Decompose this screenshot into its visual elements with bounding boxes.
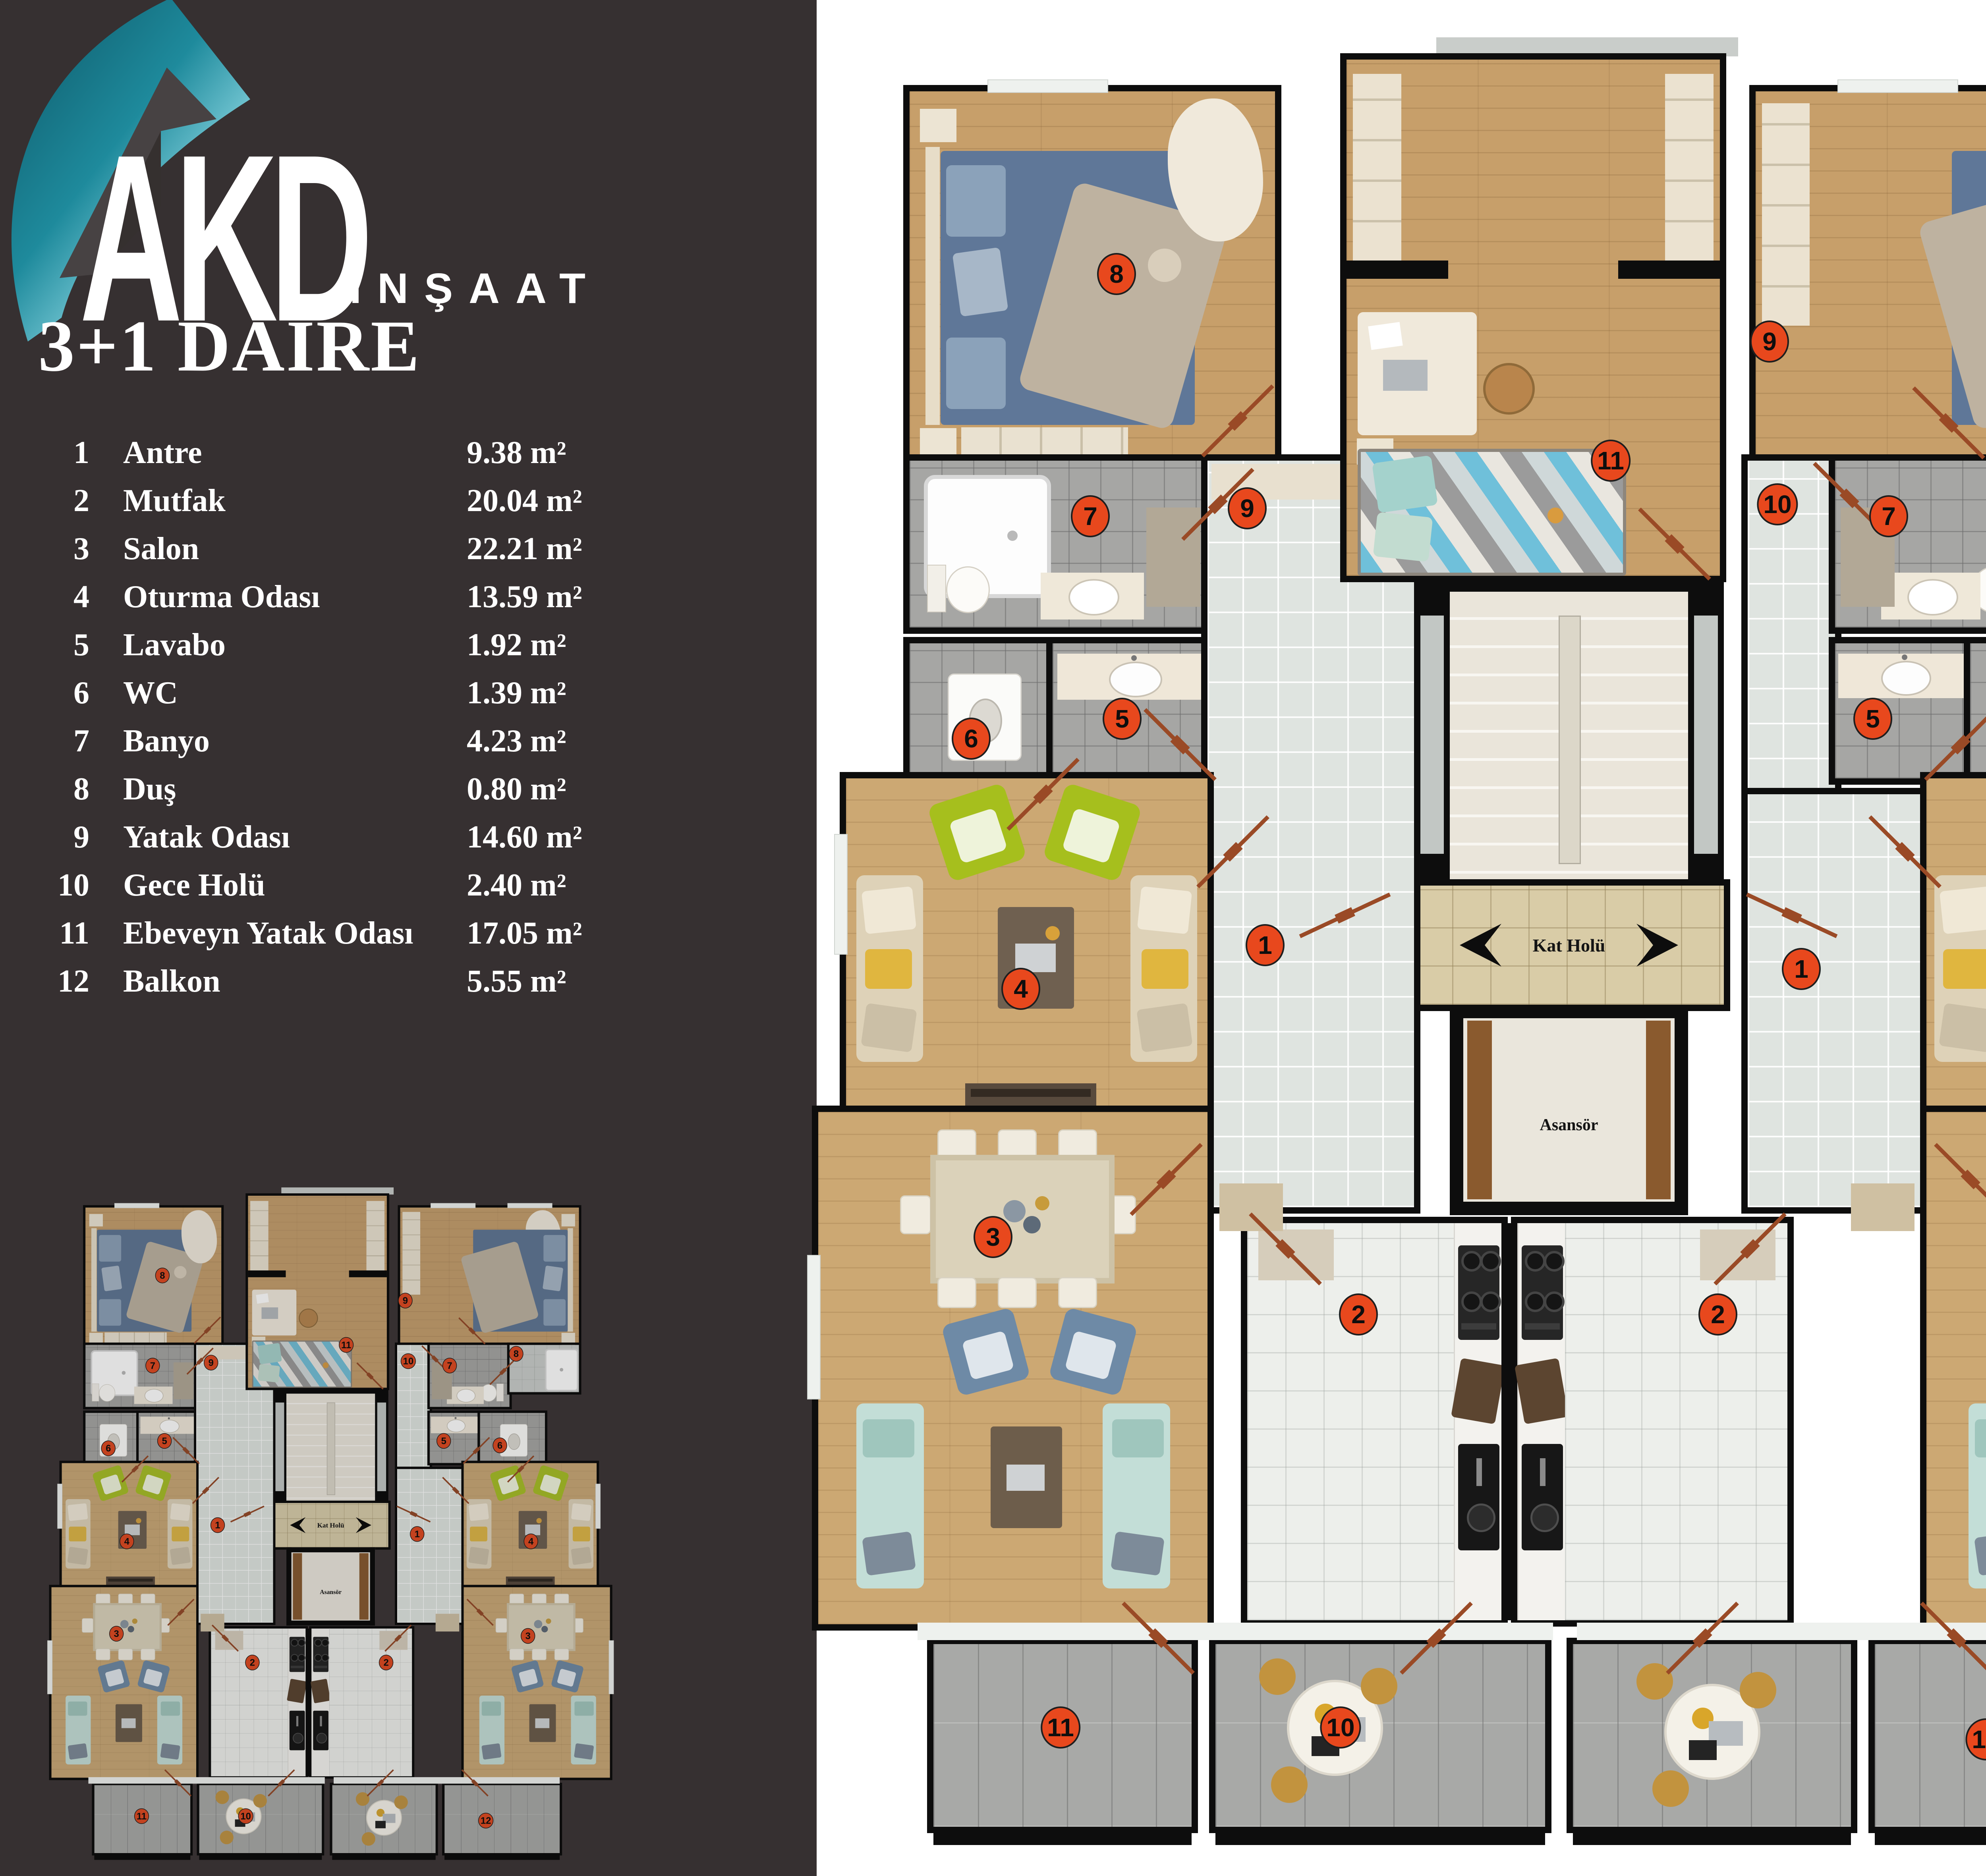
bed bbox=[252, 1340, 352, 1388]
pillow bbox=[1975, 1419, 1986, 1457]
elevator-jamb bbox=[293, 1553, 302, 1619]
room-master-bedroom bbox=[248, 1196, 387, 1388]
pillow bbox=[865, 949, 912, 989]
closet bbox=[1353, 74, 1401, 261]
nightstand bbox=[920, 109, 956, 142]
desk-chair bbox=[1483, 363, 1535, 415]
legend-row: 11Ebeveyn Yatak Odası17.05 m² bbox=[38, 909, 713, 957]
badge-right-lavabo: 5 bbox=[1853, 698, 1892, 740]
armchair bbox=[137, 1660, 170, 1693]
sofa bbox=[66, 1696, 91, 1764]
floor-hall: Kat Holü bbox=[1414, 886, 1724, 1005]
faucet-icon bbox=[1540, 1458, 1546, 1486]
floorplan-thumbnail: Kat Holü Asansör bbox=[51, 1179, 620, 1871]
cutting-board bbox=[311, 1679, 331, 1703]
nightstand bbox=[562, 1333, 575, 1345]
pillow bbox=[1943, 949, 1986, 989]
room-left-salon bbox=[51, 1587, 196, 1778]
sink-counter bbox=[140, 1417, 194, 1434]
stove bbox=[313, 1637, 328, 1672]
armchair bbox=[1042, 782, 1142, 882]
poster: AKD İNŞAAT 3+1 DAİRE 1Antre9.38 m² 2Mutf… bbox=[0, 0, 1986, 1876]
basin bbox=[1467, 1504, 1495, 1532]
badge-left-balcony: 11 bbox=[134, 1808, 149, 1824]
badge-left-sitting: 4 bbox=[120, 1534, 134, 1549]
hall-label: Kat Holü bbox=[1414, 936, 1724, 955]
cutting-board bbox=[287, 1679, 307, 1703]
sofa bbox=[568, 1499, 593, 1569]
sink bbox=[457, 1389, 476, 1402]
pillow bbox=[68, 1743, 88, 1760]
badge-left-balcony: 11 bbox=[1041, 1706, 1080, 1749]
pillow bbox=[571, 1547, 592, 1565]
coffee-table bbox=[116, 1704, 142, 1742]
legend-row: 10Gece Holü2.40 m² bbox=[38, 861, 713, 909]
legend-area: 20.04 m² bbox=[467, 477, 582, 525]
papers bbox=[256, 1293, 269, 1304]
wall bbox=[286, 1621, 375, 1626]
burner-icon bbox=[298, 1639, 305, 1646]
window bbox=[609, 1641, 614, 1694]
cushion bbox=[100, 1474, 122, 1495]
room-right-center-balcony bbox=[1573, 1644, 1851, 1827]
dining-chair bbox=[96, 1648, 110, 1660]
chair bbox=[1740, 1672, 1776, 1708]
room-right-entry bbox=[397, 1469, 464, 1623]
pillow bbox=[470, 1527, 487, 1541]
room-left-bedroom bbox=[85, 1208, 221, 1345]
kitchen-floor bbox=[1247, 1223, 1454, 1620]
soundbar bbox=[508, 1579, 553, 1581]
wardrobe bbox=[961, 427, 1128, 460]
cushion bbox=[142, 1474, 164, 1495]
stair-shaft bbox=[275, 1403, 284, 1491]
pillow bbox=[68, 1702, 87, 1716]
cushion bbox=[519, 1668, 538, 1687]
closet bbox=[250, 1201, 268, 1270]
room-right-bath bbox=[1835, 461, 1986, 627]
pillow bbox=[1940, 886, 1986, 934]
badge-right-entry: 1 bbox=[410, 1526, 424, 1542]
elevator-jamb bbox=[359, 1553, 369, 1619]
pillow bbox=[1136, 1003, 1193, 1053]
centerpiece bbox=[1003, 1200, 1026, 1222]
balcony-sill bbox=[88, 1777, 325, 1783]
tv-unit bbox=[965, 1083, 1096, 1108]
legend-area: 5.55 m² bbox=[467, 957, 566, 1006]
pillow bbox=[468, 1547, 489, 1565]
dining-chair bbox=[1058, 1277, 1097, 1308]
room-right-salon bbox=[464, 1587, 610, 1778]
soundbar bbox=[108, 1579, 153, 1581]
legend-area: 0.80 m² bbox=[467, 765, 566, 813]
kitchen-floor bbox=[211, 1629, 288, 1776]
chair bbox=[1259, 1658, 1296, 1695]
sink bbox=[1881, 661, 1931, 696]
legend-area: 17.05 m² bbox=[467, 909, 582, 957]
pillow bbox=[543, 1299, 566, 1326]
nightstand bbox=[562, 1214, 575, 1226]
room-left-salon bbox=[818, 1112, 1207, 1624]
laptop bbox=[122, 1718, 136, 1728]
toilet bbox=[99, 1384, 115, 1402]
ledge bbox=[281, 1187, 394, 1195]
room-center-balcony bbox=[199, 1785, 322, 1853]
legend-area: 1.92 m² bbox=[467, 621, 566, 669]
centerpiece bbox=[128, 1626, 134, 1632]
badge-left-salon: 3 bbox=[974, 1216, 1012, 1258]
room-left-bedroom bbox=[910, 91, 1275, 461]
cushion bbox=[105, 1668, 124, 1687]
badge-left-lavabo: 5 bbox=[1103, 698, 1142, 740]
pillow bbox=[543, 1235, 566, 1262]
balcony-sill bbox=[334, 1777, 560, 1783]
badge-left-hall: 9 bbox=[1228, 487, 1267, 529]
burner-icon bbox=[1480, 1291, 1501, 1312]
stair-shaft bbox=[1694, 616, 1718, 854]
plush-toy bbox=[1547, 508, 1563, 523]
plush-toy bbox=[323, 1363, 328, 1368]
shower-drain-icon bbox=[560, 1368, 563, 1372]
pillow bbox=[258, 1364, 280, 1383]
kitchen-floor bbox=[1565, 1223, 1787, 1620]
papers bbox=[1368, 322, 1403, 350]
kitchen-sink bbox=[313, 1711, 328, 1751]
pillow bbox=[170, 1503, 191, 1521]
badge-left-bath: 7 bbox=[1071, 495, 1110, 537]
legend-no: 6 bbox=[38, 669, 89, 717]
chair bbox=[1271, 1766, 1308, 1803]
pillow bbox=[469, 1503, 489, 1521]
window bbox=[987, 79, 1108, 93]
badge-left-entry: 1 bbox=[211, 1517, 225, 1533]
bed-headboard bbox=[568, 1228, 573, 1332]
pillow bbox=[69, 1527, 86, 1541]
elevator-jamb bbox=[1467, 1021, 1492, 1199]
dining-chair bbox=[554, 1648, 569, 1660]
centerpiece bbox=[541, 1626, 548, 1632]
bath-vanity bbox=[134, 1387, 173, 1404]
burner-icon bbox=[1525, 1251, 1546, 1272]
balcony-railing bbox=[1573, 1827, 1851, 1845]
room-right-kitchen bbox=[311, 1629, 412, 1776]
legend-name: Yatak Odası bbox=[123, 820, 290, 855]
bowl bbox=[136, 1518, 141, 1523]
burner-icon bbox=[321, 1639, 329, 1646]
pillow bbox=[1112, 1419, 1164, 1457]
legend-name: Salon bbox=[123, 531, 199, 566]
badge-right-balcony: 12 bbox=[478, 1813, 493, 1828]
pillow bbox=[863, 1419, 914, 1457]
wardrobe bbox=[402, 1212, 420, 1295]
pillow bbox=[172, 1527, 189, 1541]
legend-row: 5Lavabo1.92 m² bbox=[38, 621, 713, 669]
legend-no: 9 bbox=[38, 813, 89, 861]
legend-row: 4Oturma Odası13.59 m² bbox=[38, 573, 713, 621]
pillow bbox=[257, 1343, 282, 1364]
wall bbox=[1618, 261, 1720, 279]
kitchen-sink bbox=[1458, 1444, 1499, 1550]
badge-right-kitchen: 2 bbox=[1698, 1293, 1737, 1336]
cushion bbox=[497, 1474, 519, 1495]
balcony-sill bbox=[1577, 1623, 1986, 1640]
faucet-icon bbox=[1131, 655, 1137, 661]
legend-name: Balkon bbox=[123, 964, 220, 999]
room-right-sitting bbox=[1926, 778, 1986, 1112]
pillow bbox=[1111, 1531, 1165, 1576]
kitchen-sink bbox=[1522, 1444, 1563, 1550]
squat-basin bbox=[508, 1433, 520, 1450]
sofa bbox=[1969, 1403, 1986, 1588]
stair-divider bbox=[1559, 616, 1581, 864]
badge-right-bedroom: 9 bbox=[398, 1293, 412, 1308]
legend-name: Duş bbox=[123, 772, 176, 807]
stove-controls bbox=[1525, 1323, 1560, 1330]
tv-unit bbox=[106, 1577, 155, 1586]
room-right-entry bbox=[1748, 794, 1926, 1207]
kitchen-counter bbox=[288, 1629, 307, 1776]
room-center-balcony bbox=[1215, 1644, 1545, 1827]
legend-no: 12 bbox=[38, 957, 89, 1006]
legend-name: WC bbox=[123, 676, 178, 710]
desk bbox=[1358, 312, 1477, 435]
centerpiece bbox=[1023, 1216, 1041, 1233]
chair bbox=[1652, 1770, 1689, 1807]
pillow bbox=[1939, 1003, 1986, 1053]
elevator-label: Asansör bbox=[1450, 1117, 1688, 1133]
door-mat bbox=[201, 1614, 224, 1632]
cushion bbox=[557, 1668, 576, 1687]
pillow bbox=[946, 338, 1006, 409]
badge-right-lavabo: 5 bbox=[437, 1433, 451, 1449]
legend-area: 9.38 m² bbox=[467, 429, 566, 477]
legend-row: 7Banyo4.23 m² bbox=[38, 717, 713, 765]
balcony-sill bbox=[918, 1623, 1553, 1640]
wardrobe bbox=[104, 1332, 166, 1345]
sofa bbox=[467, 1499, 491, 1569]
wardrobe bbox=[1762, 103, 1810, 326]
brand-subtitle: İNŞAAT bbox=[350, 267, 601, 310]
laptop bbox=[1007, 1465, 1045, 1491]
shower-tray bbox=[545, 1349, 578, 1391]
badge-right-salon: 3 bbox=[521, 1628, 535, 1644]
legend-no: 3 bbox=[38, 525, 89, 573]
burner-icon bbox=[1461, 1291, 1482, 1312]
bed bbox=[97, 1229, 191, 1332]
sofa bbox=[571, 1696, 596, 1764]
badge-left-kitchen: 2 bbox=[245, 1655, 259, 1670]
pillow bbox=[161, 1702, 180, 1716]
burner-icon bbox=[314, 1639, 322, 1646]
burner-icon bbox=[1544, 1251, 1565, 1272]
burner-icon bbox=[1544, 1291, 1565, 1312]
sink bbox=[160, 1420, 180, 1433]
kitchen-counter bbox=[311, 1629, 330, 1776]
faucet-icon bbox=[296, 1716, 298, 1726]
pillow bbox=[946, 165, 1006, 237]
stove bbox=[1522, 1245, 1563, 1340]
legend-no: 1 bbox=[38, 429, 89, 477]
kitchen-counter bbox=[1454, 1223, 1504, 1620]
blanket bbox=[460, 1241, 539, 1334]
blanket bbox=[1917, 181, 1986, 430]
sink bbox=[1907, 579, 1958, 616]
cushion bbox=[1062, 808, 1121, 864]
badge-left-kitchen: 2 bbox=[1339, 1293, 1378, 1336]
dining-chair bbox=[532, 1648, 546, 1660]
magazine bbox=[375, 1821, 386, 1828]
basin bbox=[316, 1733, 327, 1744]
burner-icon bbox=[291, 1654, 298, 1662]
legend-row: 1Antre9.38 m² bbox=[38, 429, 713, 477]
armchair bbox=[135, 1465, 172, 1502]
sofa bbox=[479, 1696, 504, 1764]
wall bbox=[1675, 1005, 1688, 1215]
pillow bbox=[543, 1266, 563, 1291]
armchair bbox=[92, 1465, 129, 1502]
burner-icon bbox=[314, 1654, 322, 1662]
room-left-wc bbox=[910, 643, 1053, 778]
badge-right-entry: 1 bbox=[1782, 948, 1821, 990]
centerpiece bbox=[546, 1619, 551, 1624]
legend-area: 22.21 m² bbox=[467, 525, 582, 573]
legend-name: Mutfak bbox=[123, 483, 226, 518]
badge-right-bath: 7 bbox=[442, 1358, 457, 1373]
stair-divider bbox=[327, 1403, 335, 1495]
dining-chair bbox=[141, 1648, 155, 1660]
legend-no: 11 bbox=[38, 909, 89, 957]
door-mat bbox=[436, 1614, 460, 1632]
burner-icon bbox=[291, 1639, 298, 1646]
pillow bbox=[952, 247, 1008, 317]
sofa bbox=[157, 1696, 182, 1764]
toilet bbox=[927, 565, 946, 612]
page-title: 3+1 DAİRE bbox=[38, 306, 421, 386]
faucet-icon bbox=[454, 1417, 456, 1419]
bed bbox=[1952, 151, 1986, 425]
cabinet bbox=[1258, 1229, 1334, 1280]
room-right-bedroom bbox=[400, 1208, 579, 1345]
elevator: Asansör bbox=[286, 1547, 375, 1625]
room-left-bath bbox=[85, 1345, 196, 1407]
dining-chair bbox=[82, 1618, 93, 1633]
wall bbox=[305, 1629, 311, 1776]
armchair bbox=[551, 1660, 584, 1693]
chair bbox=[394, 1795, 408, 1809]
legend-name: Oturma Odası bbox=[123, 579, 320, 614]
badge-center-balcony: 10 bbox=[238, 1808, 253, 1824]
badge-right-bath: 7 bbox=[1869, 495, 1908, 537]
dining-table bbox=[930, 1155, 1115, 1283]
bath-mat bbox=[174, 1363, 194, 1399]
laptop bbox=[261, 1307, 278, 1319]
legend: 1Antre9.38 m² 2Mutfak20.04 m² 3Salon22.2… bbox=[38, 429, 713, 1006]
elevator-jamb bbox=[1646, 1021, 1671, 1199]
badge-center-balcony: 10 bbox=[1320, 1706, 1361, 1749]
pillow bbox=[862, 1531, 916, 1576]
sofa bbox=[1103, 1403, 1170, 1588]
hall-label: Kat Holü bbox=[273, 1522, 388, 1529]
pillow bbox=[1373, 512, 1433, 562]
wall bbox=[286, 1547, 292, 1625]
window bbox=[507, 1203, 552, 1208]
bath-mat bbox=[1146, 508, 1200, 607]
legend-name: Ebeveyn Yatak Odası bbox=[123, 916, 413, 951]
sofa bbox=[1130, 875, 1197, 1062]
balcony-railing bbox=[199, 1853, 322, 1860]
wall bbox=[370, 1547, 375, 1625]
badge-right-kitchen: 2 bbox=[379, 1655, 393, 1670]
laptop bbox=[535, 1718, 549, 1728]
window bbox=[114, 1203, 159, 1208]
legend-name: Gece Holü bbox=[123, 868, 265, 903]
window bbox=[431, 1203, 475, 1208]
room-left-bath bbox=[910, 461, 1207, 627]
window bbox=[57, 1484, 62, 1529]
floor-hall: Kat Holü bbox=[273, 1503, 388, 1548]
pillow bbox=[861, 1003, 917, 1053]
pillow bbox=[1142, 949, 1188, 989]
pillow bbox=[1137, 886, 1192, 934]
pillow bbox=[482, 1702, 501, 1716]
stool bbox=[174, 1266, 186, 1278]
dining-chair bbox=[937, 1277, 976, 1308]
window bbox=[47, 1641, 52, 1694]
cushion bbox=[1064, 1330, 1117, 1380]
burner-icon bbox=[1461, 1251, 1482, 1272]
wall bbox=[1450, 1005, 1688, 1018]
bed bbox=[1358, 449, 1626, 576]
faucet-icon bbox=[320, 1716, 322, 1726]
dining-table bbox=[93, 1603, 162, 1651]
room-left-kitchen bbox=[1247, 1223, 1501, 1620]
room-master-bedroom bbox=[1347, 60, 1720, 576]
pillow bbox=[573, 1527, 590, 1541]
badge-left-bedroom: 8 bbox=[1097, 253, 1136, 295]
sink-counter bbox=[431, 1417, 479, 1433]
burner-icon bbox=[1480, 1251, 1501, 1272]
badge-left-bedroom: 8 bbox=[155, 1268, 170, 1283]
pillow bbox=[481, 1743, 502, 1760]
kitchen-counter bbox=[1517, 1223, 1567, 1620]
pillow bbox=[99, 1235, 121, 1262]
toilet bbox=[92, 1384, 99, 1401]
room-right-balcony bbox=[444, 1785, 560, 1853]
badge-master-bedroom: 11 bbox=[339, 1337, 354, 1353]
legend-no: 7 bbox=[38, 717, 89, 765]
legend-area: 1.39 m² bbox=[467, 669, 566, 717]
sofa bbox=[856, 875, 923, 1062]
burner-icon bbox=[321, 1654, 329, 1662]
pillow bbox=[68, 1503, 88, 1521]
legend-row: 6WC1.39 m² bbox=[38, 669, 713, 717]
pillow bbox=[1974, 1531, 1986, 1576]
shower-drain-icon bbox=[122, 1371, 126, 1375]
sink-counter bbox=[1838, 654, 1967, 698]
room-right-center-balcony bbox=[332, 1785, 435, 1853]
badge-right-sitting: 4 bbox=[524, 1534, 538, 1549]
dining-chair bbox=[496, 1618, 507, 1633]
burner-icon bbox=[298, 1654, 305, 1662]
dining-chair bbox=[900, 1195, 931, 1234]
centerpiece bbox=[534, 1620, 542, 1628]
stove bbox=[290, 1637, 305, 1672]
badge-right-hall: 10 bbox=[401, 1353, 416, 1369]
armchair bbox=[1048, 1307, 1138, 1396]
badge-right-wc: 6 bbox=[493, 1438, 507, 1453]
chair bbox=[220, 1831, 234, 1844]
pillow bbox=[101, 1266, 122, 1291]
